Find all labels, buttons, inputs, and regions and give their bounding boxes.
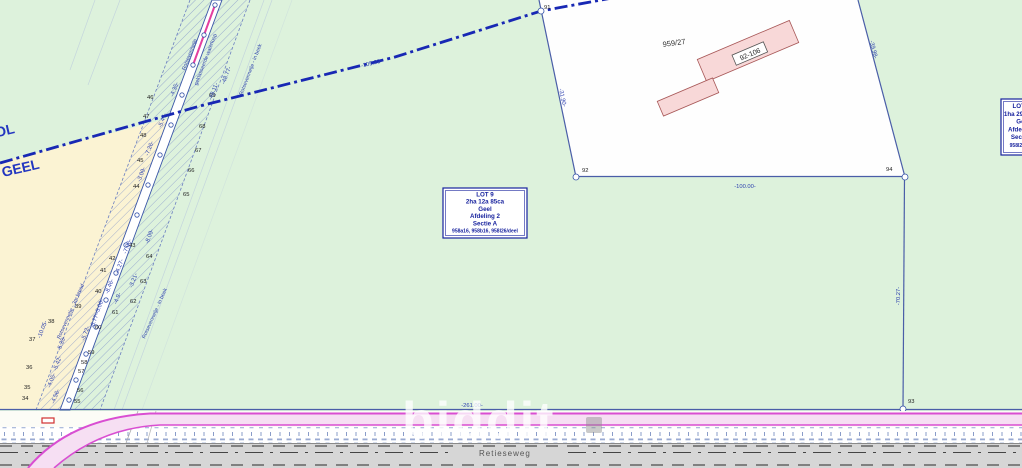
survey-point-label: 41 <box>100 268 106 274</box>
survey-point-label: 68 <box>199 124 205 130</box>
lot10-info-line: Geel <box>1016 119 1022 126</box>
survey-point-label: 56 <box>77 388 83 394</box>
survey-point-label: 44 <box>133 184 140 190</box>
survey-point-label: 92 <box>582 168 588 174</box>
survey-point-label: 93 <box>908 399 914 405</box>
parcel-959-27-area <box>539 0 905 177</box>
lot9-info-line: Sectie A <box>473 220 498 227</box>
watermark-mark <box>586 417 602 433</box>
survey-point-label: 59 <box>88 350 94 356</box>
lot9-info-line: Geel <box>478 206 492 213</box>
survey-point-label: 65 <box>183 192 189 198</box>
lot9-info-box: LOT 92ha 12a 85caGeelAfdeling 2Sectie A9… <box>443 188 527 238</box>
lot10-info-line: LOT 10 <box>1013 103 1022 110</box>
survey-point-label: 42 <box>109 256 115 262</box>
survey-point-label: 45 <box>137 158 143 164</box>
lot9-info-line: Afdeling 2 <box>470 213 500 220</box>
survey-point-label: 57 <box>78 369 84 375</box>
lot10-info-line: 1ha 29a 70ca <box>1004 111 1022 118</box>
lot9-info-line: LOT 9 <box>476 192 494 199</box>
survey-point-label: 67 <box>195 148 201 154</box>
dimension-label: -100.00- <box>734 184 756 190</box>
survey-point-label: 37 <box>29 337 35 343</box>
survey-point-label: 63 <box>140 279 146 285</box>
lot9-info-line: 958a16, 958b16, 958l26/deel <box>452 229 518 235</box>
lot10-info-box: LOT 101ha 29a 70caGeelAfdeling 2Sectie A… <box>1001 99 1022 155</box>
cadastral-map: 92-106 959/27 LOT 92ha 12a 85caGeelAfdel… <box>0 0 1022 468</box>
culvert-marker <box>42 418 54 423</box>
survey-point-label: 62 <box>130 299 136 305</box>
lot10-info-line: 958l26/deel <box>1010 143 1022 149</box>
survey-point-label: 94 <box>886 167 893 173</box>
survey-point-label: 58 <box>81 360 87 366</box>
dimension-label: -70.27- <box>896 287 902 305</box>
cadastral-map-viewport: 92-106 959/27 LOT 92ha 12a 85caGeelAfdel… <box>0 0 1022 468</box>
survey-point-label: 64 <box>146 254 153 260</box>
road-name-label: Retieseweg <box>479 449 531 458</box>
survey-point-label: 91 <box>544 5 550 11</box>
survey-point-label: 38 <box>48 319 54 325</box>
lot10-info-line: Sectie A <box>1011 134 1022 141</box>
survey-point-label: 34 <box>22 396 29 402</box>
survey-point-label: 61 <box>112 310 118 316</box>
survey-point-label: 55 <box>74 399 80 405</box>
survey-point-label: 36 <box>26 365 32 371</box>
survey-point-label: 47 <box>143 114 149 120</box>
lot10-info-line: Afdeling 2 <box>1008 126 1022 133</box>
survey-point-label: 48 <box>140 133 146 139</box>
lot9-info-line: 2ha 12a 85ca <box>466 199 505 206</box>
survey-point-label: 35 <box>24 385 30 391</box>
survey-point-label: 46 <box>147 95 153 101</box>
survey-point-label: 40 <box>95 289 101 295</box>
survey-point-label: 66 <box>188 168 194 174</box>
watermark-text: biddit <box>402 392 556 450</box>
